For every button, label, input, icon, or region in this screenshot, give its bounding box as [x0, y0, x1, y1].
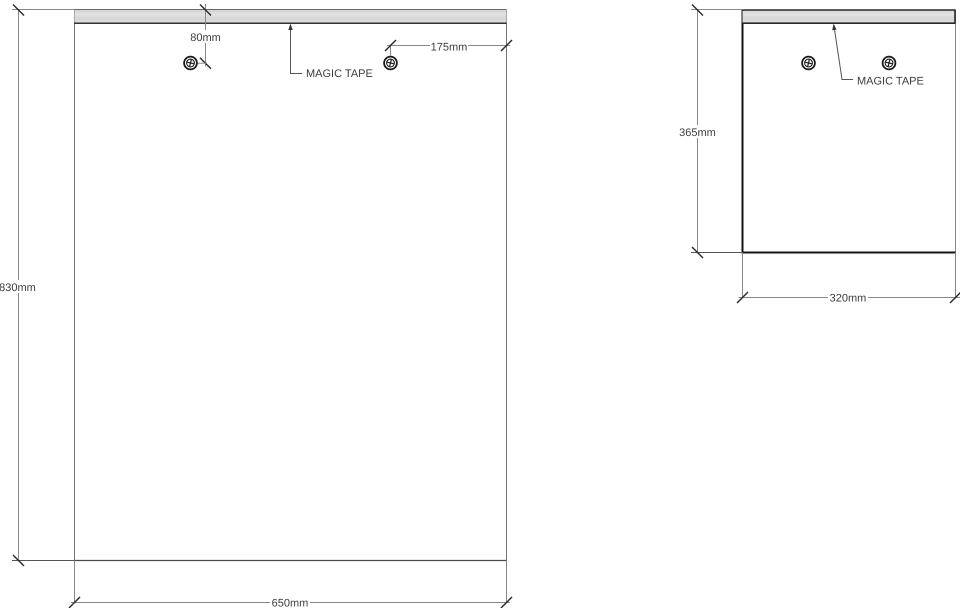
svg-text:175mm: 175mm — [431, 41, 468, 53]
svg-text:650mm: 650mm — [272, 597, 309, 608]
svg-text:320mm: 320mm — [830, 292, 867, 304]
svg-text:365mm: 365mm — [679, 127, 716, 139]
svg-text:MAGIC TAPE: MAGIC TAPE — [306, 68, 373, 80]
svg-text:80mm: 80mm — [190, 32, 221, 44]
svg-text:MAGIC TAPE: MAGIC TAPE — [857, 76, 924, 88]
svg-text:830mm: 830mm — [0, 282, 36, 294]
